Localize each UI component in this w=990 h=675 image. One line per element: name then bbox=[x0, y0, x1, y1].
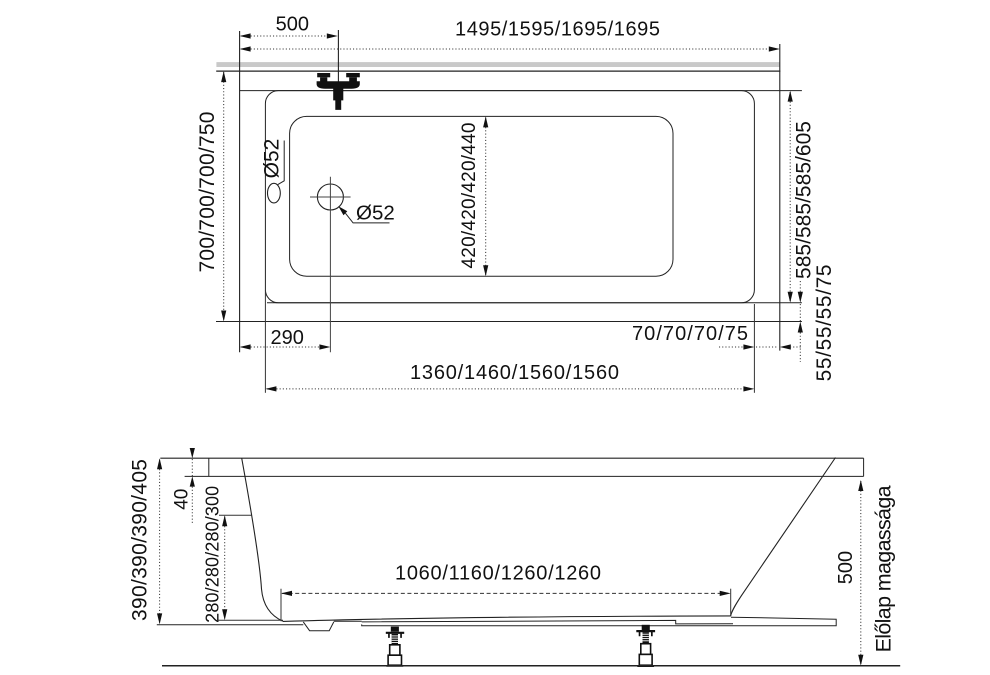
svg-text:420/420/420/440: 420/420/420/440 bbox=[459, 123, 480, 269]
svg-text:390/390/390/405: 390/390/390/405 bbox=[129, 459, 152, 621]
svg-text:40: 40 bbox=[172, 489, 193, 510]
svg-text:55/55/55/75: 55/55/55/75 bbox=[813, 264, 836, 381]
svg-text:585/585/585/605: 585/585/585/605 bbox=[793, 121, 816, 279]
svg-text:1360/1460/1560/1560: 1360/1460/1560/1560 bbox=[410, 362, 619, 384]
svg-text:290: 290 bbox=[271, 327, 304, 349]
svg-text:280/280/280/300: 280/280/280/300 bbox=[203, 486, 223, 623]
svg-text:Ø52: Ø52 bbox=[261, 139, 284, 179]
svg-text:700/700/700/750: 700/700/700/750 bbox=[196, 112, 219, 273]
svg-text:70/70/70/75: 70/70/70/75 bbox=[632, 323, 748, 345]
svg-text:Előlap magassága: Előlap magassága bbox=[872, 485, 896, 652]
svg-text:1060/1160/1260/1260: 1060/1160/1260/1260 bbox=[395, 563, 601, 585]
svg-text:500: 500 bbox=[276, 14, 309, 36]
svg-text:1495/1595/1695/1695: 1495/1595/1695/1695 bbox=[455, 18, 660, 40]
svg-text:Ø52: Ø52 bbox=[356, 202, 395, 225]
svg-text:500: 500 bbox=[835, 551, 857, 584]
